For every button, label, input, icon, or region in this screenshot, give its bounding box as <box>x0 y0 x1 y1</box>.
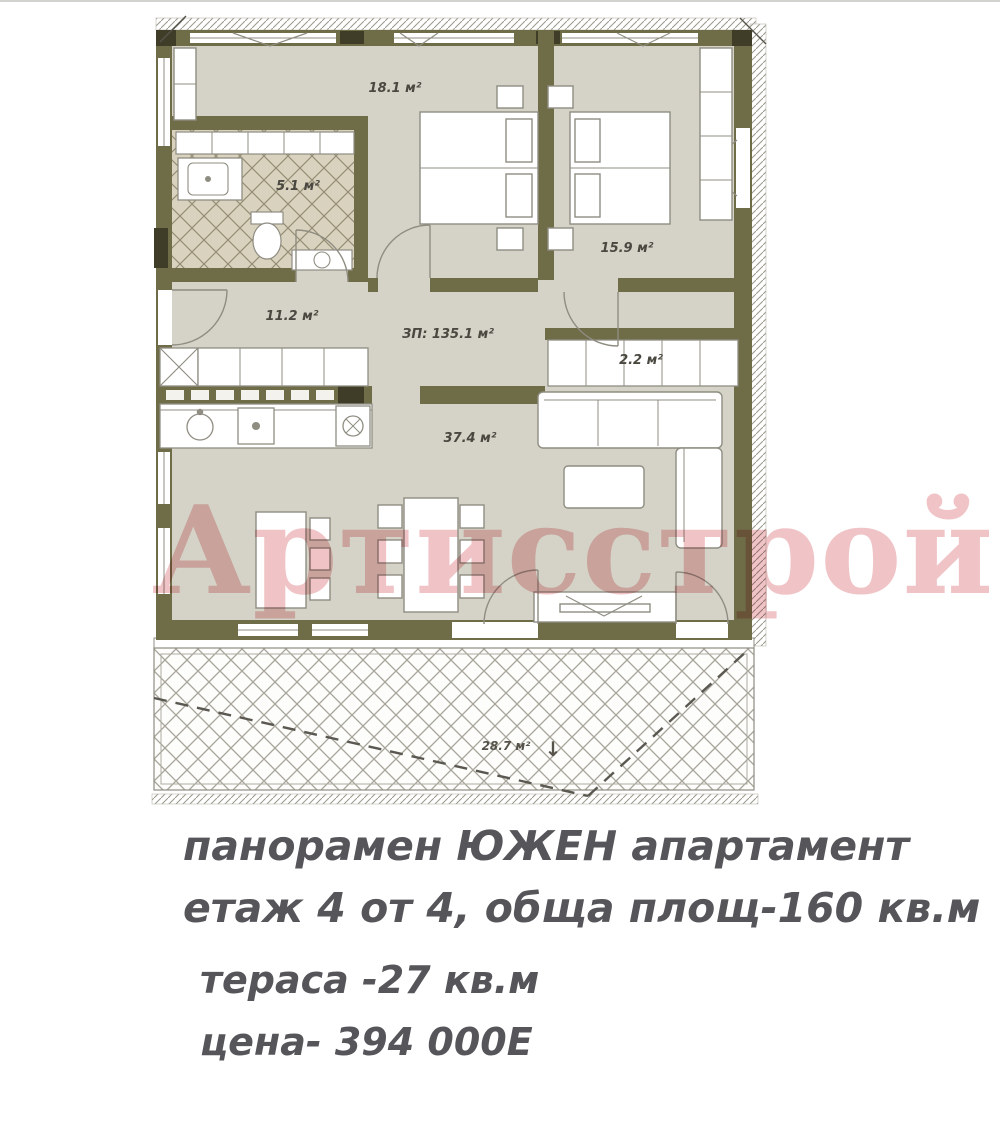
kitchen-upper-cabinets <box>166 390 334 400</box>
nightstand <box>497 228 523 250</box>
bar-table <box>256 512 306 608</box>
kitchen-counter <box>160 404 372 448</box>
nightstand <box>548 228 573 250</box>
nightstand <box>497 86 523 108</box>
floor-plan-drawing: 18.1 м² 5.1 м² 15.9 м² 11.2 м² ЗП: 135.1… <box>0 0 1000 810</box>
room-label-hall: 11.2 м² <box>266 309 319 324</box>
floor-plan-page: 18.1 м² 5.1 м² 15.9 м² 11.2 м² ЗП: 135.1… <box>0 0 1000 1127</box>
caption-floor-and-area: етаж 4 от 4, обща площ-160 кв.м <box>183 884 980 932</box>
terrace-slope-arrow: ↓ <box>545 737 562 761</box>
shower <box>178 158 242 200</box>
room-label-bathroom: 5.1 м² <box>276 179 320 194</box>
caption-price: цена- 394 000Е <box>200 1020 533 1064</box>
bathroom-radiator <box>154 228 168 268</box>
room-label-terrace: 28.7 м² <box>482 739 532 753</box>
bar-stools <box>310 518 330 600</box>
bathroom-area <box>154 130 354 270</box>
room-label-living: 37.4 м² <box>444 431 497 446</box>
sofa-arm <box>676 448 722 548</box>
room-label-closet: 2.2 м² <box>619 353 663 368</box>
caption-apartment-type: панорамен ЮЖЕН апартамент <box>183 822 909 870</box>
hall-furniture <box>160 348 368 386</box>
bathroom-closet <box>176 132 354 154</box>
room-label-built-area: ЗП: 135.1 м² <box>402 327 494 342</box>
dining-table <box>404 498 458 612</box>
nightstand <box>548 86 573 108</box>
room-label-bedroom-2: 15.9 м² <box>601 241 654 256</box>
caption-terrace-area: тераса -27 кв.м <box>200 958 539 1002</box>
toilet <box>251 212 283 259</box>
room-label-bedroom-1: 18.1 м² <box>369 81 422 96</box>
terrace-area <box>154 638 754 796</box>
hall-wardrobe <box>198 348 368 386</box>
wardrobe-2 <box>700 48 732 220</box>
coffee-table <box>564 466 644 508</box>
